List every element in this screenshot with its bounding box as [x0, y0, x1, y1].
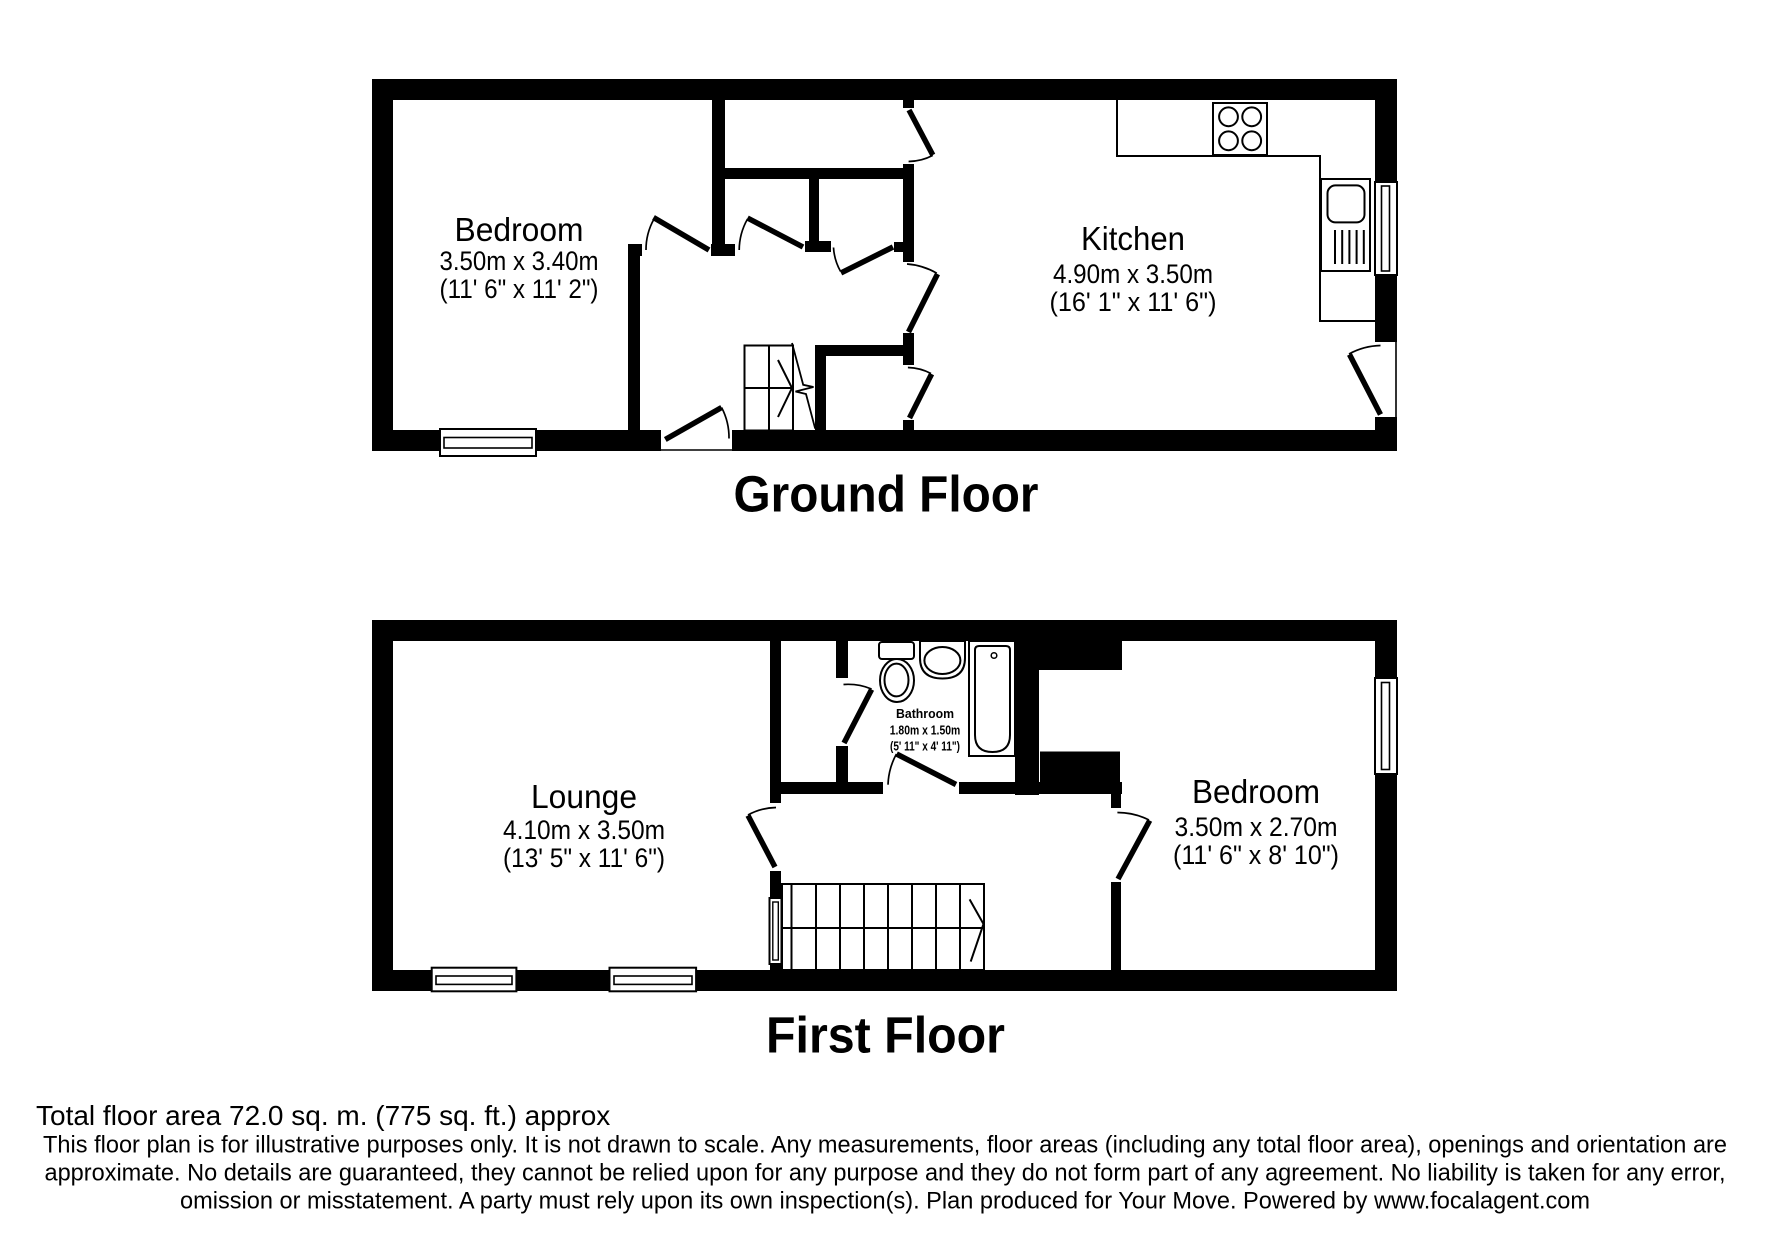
svg-text:Kitchen: Kitchen [1081, 220, 1185, 257]
svg-text:First Floor: First Floor [766, 1007, 1005, 1064]
svg-text:Lounge: Lounge [531, 778, 637, 815]
svg-text:Ground Floor: Ground Floor [734, 466, 1039, 523]
svg-text:(13' 5" x 11' 6"): (13' 5" x 11' 6") [503, 843, 665, 873]
svg-text:(5' 11" x 4' 11"): (5' 11" x 4' 11") [890, 739, 960, 754]
svg-text:Total floor area 72.0 sq. m. (: Total floor area 72.0 sq. m. (775 sq. ft… [36, 1100, 610, 1131]
svg-text:(16' 1" x 11' 6"): (16' 1" x 11' 6") [1050, 287, 1217, 317]
svg-text:4.10m x 3.50m: 4.10m x 3.50m [503, 815, 665, 845]
svg-text:Bedroom: Bedroom [455, 211, 584, 248]
svg-text:(11' 6" x 11' 2"): (11' 6" x 11' 2") [440, 274, 599, 304]
svg-text:approximate. No details are gu: approximate. No details are guaranteed, … [45, 1160, 1726, 1187]
svg-text:(11' 6" x 8' 10"): (11' 6" x 8' 10") [1173, 840, 1339, 870]
svg-text:This floor plan is for illustr: This floor plan is for illustrative purp… [43, 1132, 1727, 1159]
svg-text:3.50m x 3.40m: 3.50m x 3.40m [440, 246, 599, 276]
svg-text:3.50m x 2.70m: 3.50m x 2.70m [1175, 812, 1338, 842]
svg-text:4.90m x 3.50m: 4.90m x 3.50m [1053, 259, 1213, 289]
svg-text:Bedroom: Bedroom [1192, 773, 1320, 810]
svg-text:omission or misstatement. A pa: omission or misstatement. A party must r… [180, 1188, 1590, 1215]
svg-text:Bathroom: Bathroom [896, 706, 954, 721]
svg-text:1.80m x 1.50m: 1.80m x 1.50m [890, 723, 961, 738]
